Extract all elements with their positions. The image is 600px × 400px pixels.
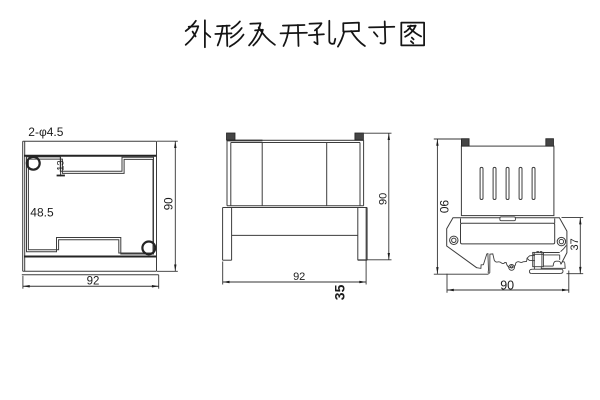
svg-text:90: 90 <box>437 200 451 214</box>
svg-text:37: 37 <box>569 238 581 250</box>
svg-text:2-φ4.5: 2-φ4.5 <box>28 125 63 139</box>
svg-text:13: 13 <box>55 160 66 171</box>
svg-text:90: 90 <box>378 193 390 205</box>
svg-text:35: 35 <box>332 284 348 300</box>
svg-text:92: 92 <box>87 275 100 287</box>
svg-text:90: 90 <box>164 197 176 210</box>
svg-text:92: 92 <box>293 271 305 283</box>
svg-text:48.5: 48.5 <box>30 205 54 219</box>
svg-text:90: 90 <box>500 278 514 292</box>
